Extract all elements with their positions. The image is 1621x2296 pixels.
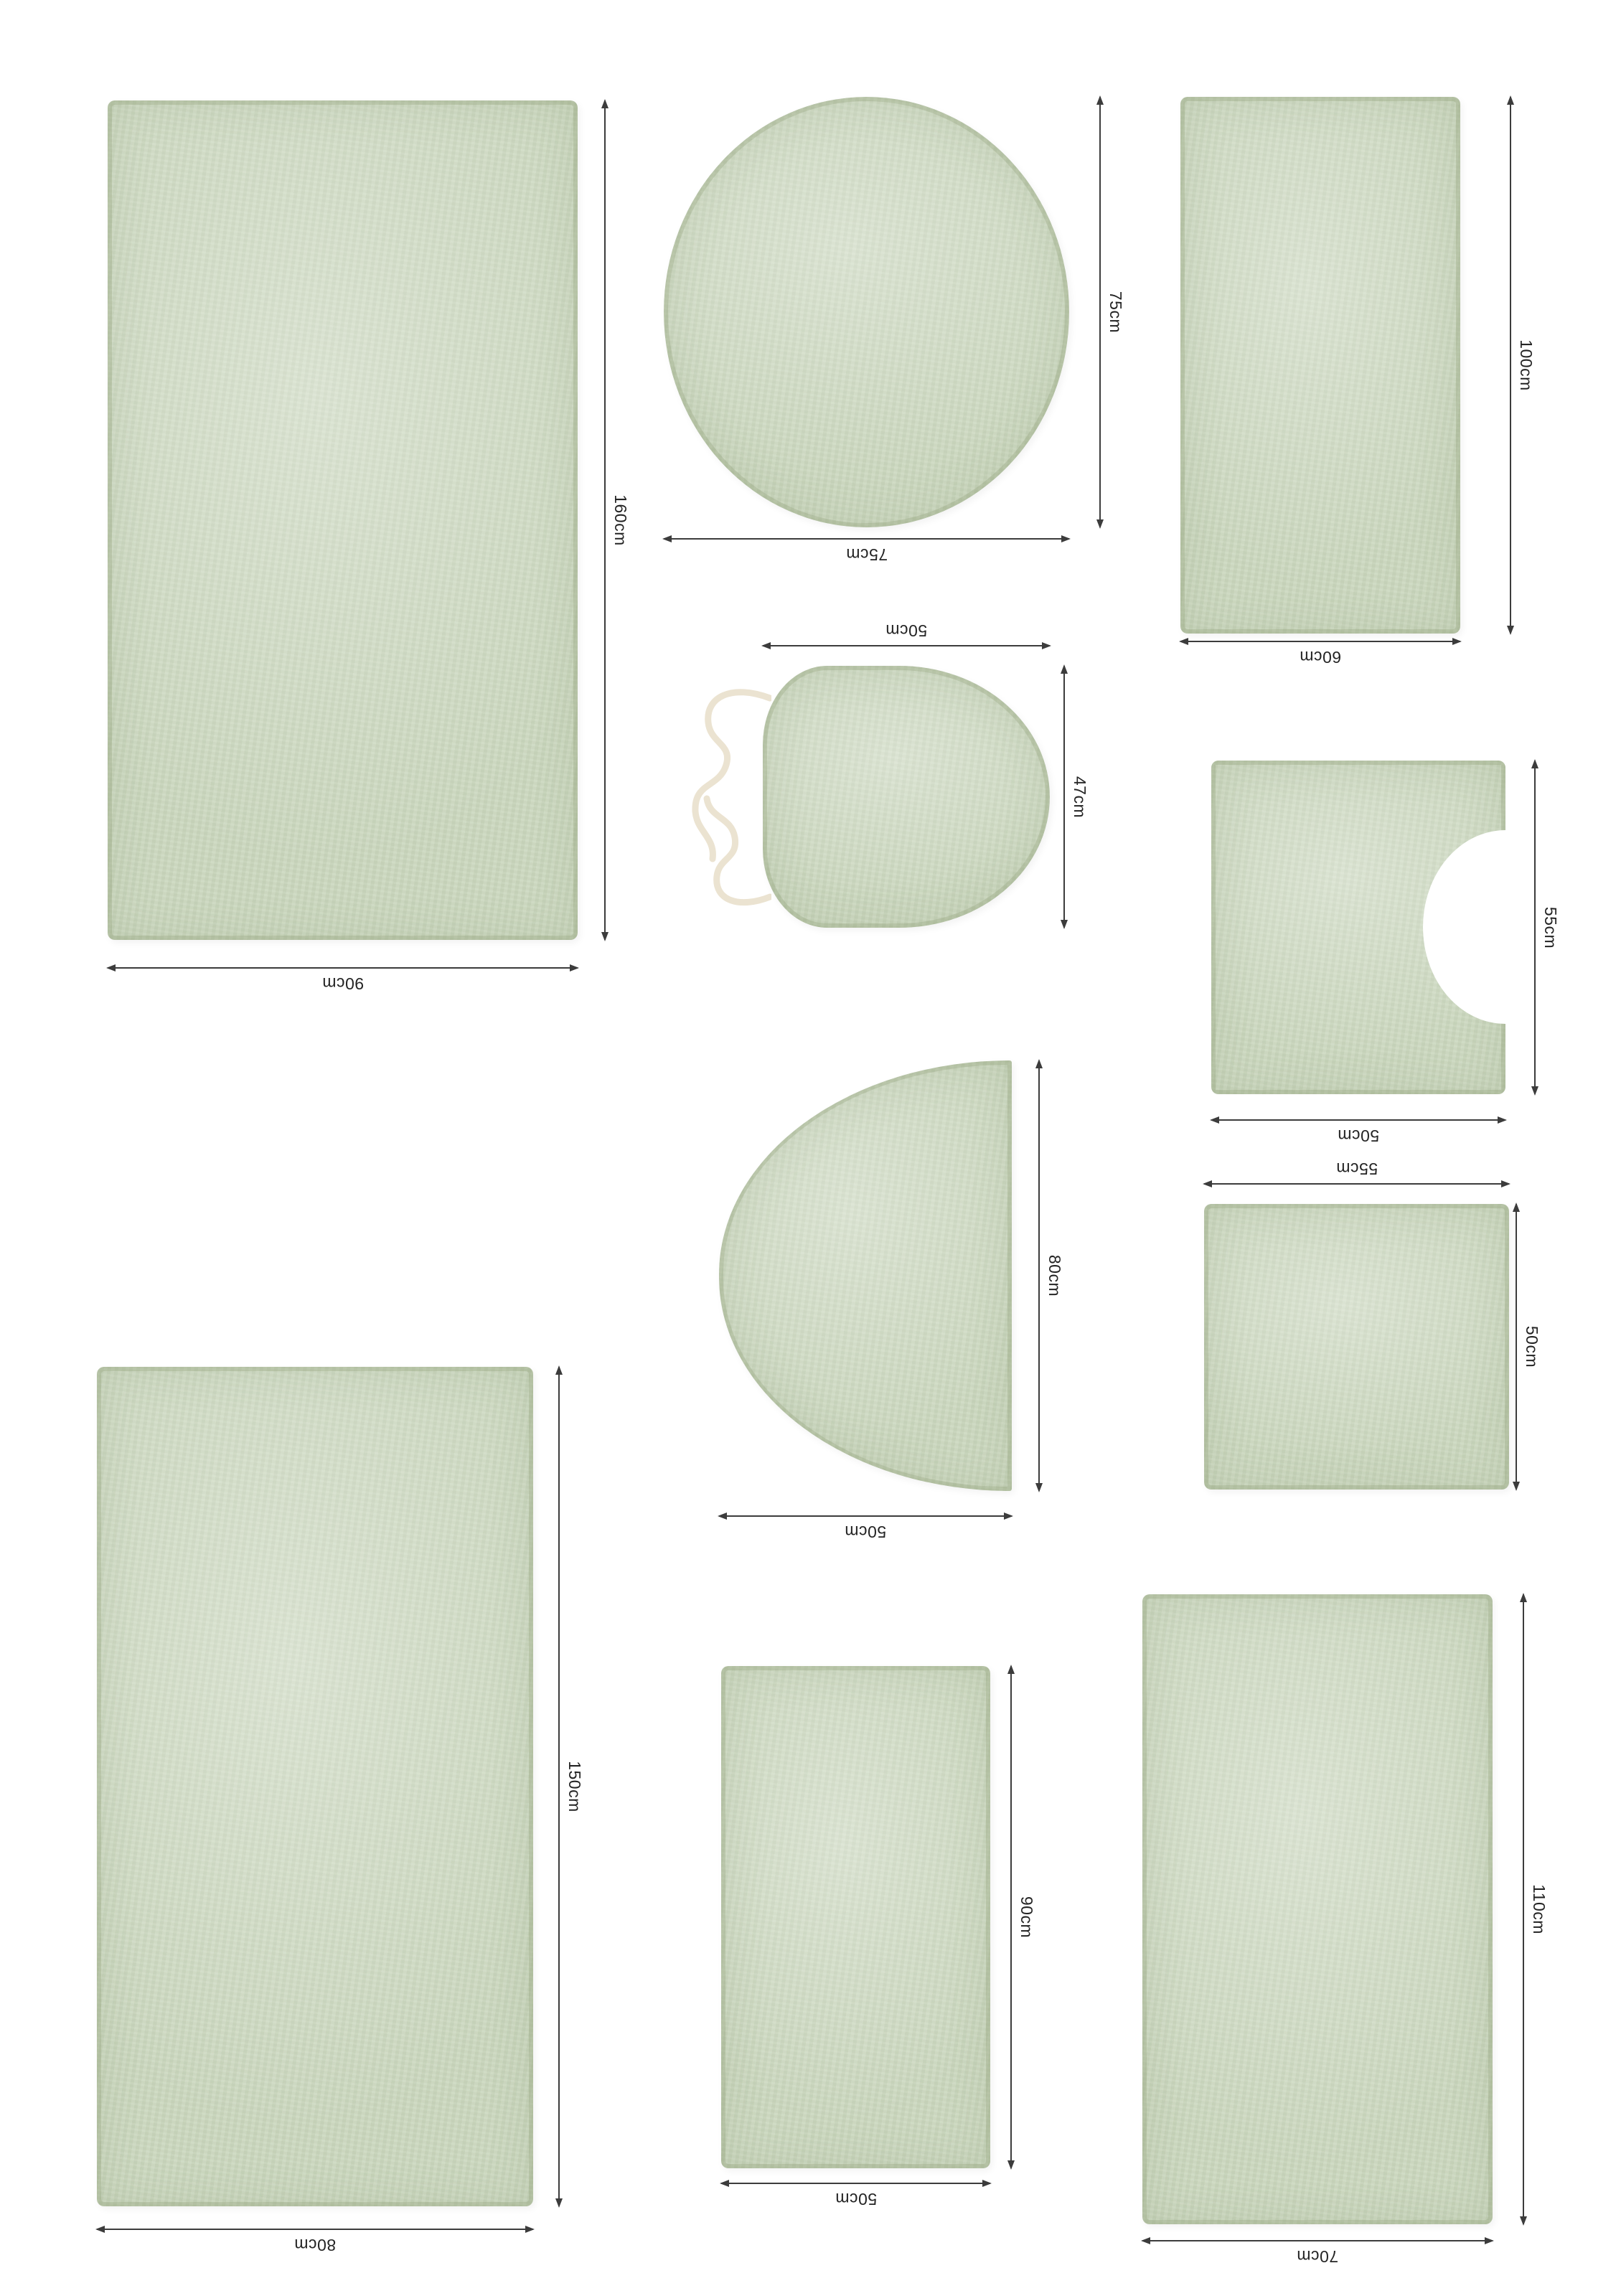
dimension-label: 110cm (1529, 1884, 1549, 1934)
dimension-label: 160cm (611, 494, 630, 546)
rug-shape-contour-u-mat (1211, 761, 1505, 1094)
dimension-label: 55cm (1335, 1159, 1377, 1178)
width-dimension: 80cm (97, 2229, 533, 2230)
width-dimension: 50cm (719, 1515, 1012, 1517)
dimension-label: 150cm (565, 1761, 584, 1812)
height-dimension: 80cm (1038, 1060, 1040, 1491)
rug-shape-rectangle (1142, 1594, 1493, 2224)
height-dimension: 55cm (1534, 761, 1536, 1094)
dimension-label: 75cm (1106, 291, 1125, 333)
dimension-label: 50cm (1522, 1326, 1541, 1368)
dimension-label: 80cm (294, 2235, 336, 2254)
dimension-label: 70cm (1297, 2246, 1338, 2266)
dimension-label: 60cm (1300, 647, 1341, 667)
width-dimension: 70cm (1142, 2240, 1493, 2241)
height-dimension: 50cm (1516, 1204, 1517, 1490)
dimension-label: 50cm (885, 621, 927, 640)
width-dimension: 75cm (664, 538, 1069, 540)
rug-shape-rectangle (721, 1666, 990, 2168)
width-dimension: 50cm (1211, 1119, 1505, 1121)
height-dimension: 110cm (1523, 1594, 1524, 2224)
drawstring-icon (678, 678, 771, 918)
dimension-label: 50cm (845, 1522, 886, 1541)
width-dimension: 60cm (1180, 641, 1460, 642)
dimension-label: 50cm (835, 2189, 876, 2208)
dimension-label: 100cm (1516, 339, 1536, 391)
dimension-label: 55cm (1541, 906, 1560, 948)
width-dimension: 90cm (108, 967, 578, 969)
height-dimension: 100cm (1510, 97, 1511, 634)
rug-shape-square (1204, 1204, 1509, 1490)
rug-shape-rectangle (97, 1367, 533, 2206)
dimension-label: 75cm (845, 545, 887, 564)
rug-shape-rectangle (108, 100, 578, 940)
dimension-label: 90cm (1017, 1896, 1036, 1938)
dimension-label: 80cm (1045, 1255, 1064, 1297)
rug-shape-half-circle (719, 1060, 1012, 1491)
rug-shape-toilet-lid-cover (763, 666, 1050, 928)
dimension-label: 90cm (321, 974, 363, 993)
dimension-label: 47cm (1070, 776, 1089, 817)
rug-shape-circle (664, 97, 1069, 527)
height-dimension: 90cm (1010, 1666, 1012, 2168)
width-dimension: 50cm (763, 645, 1050, 646)
width-dimension: 55cm (1204, 1183, 1509, 1185)
height-dimension: 47cm (1063, 666, 1065, 928)
height-dimension: 75cm (1099, 97, 1101, 527)
dimension-label: 50cm (1338, 1126, 1379, 1145)
bath-mat-dimension-sheet: 160cm 90cm 75cm 75cm 100cm 60cm 50c (0, 0, 1621, 2296)
rug-shape-rectangle (1180, 97, 1460, 634)
height-dimension: 150cm (558, 1367, 560, 2206)
height-dimension: 160cm (604, 100, 606, 940)
width-dimension: 50cm (721, 2183, 990, 2184)
